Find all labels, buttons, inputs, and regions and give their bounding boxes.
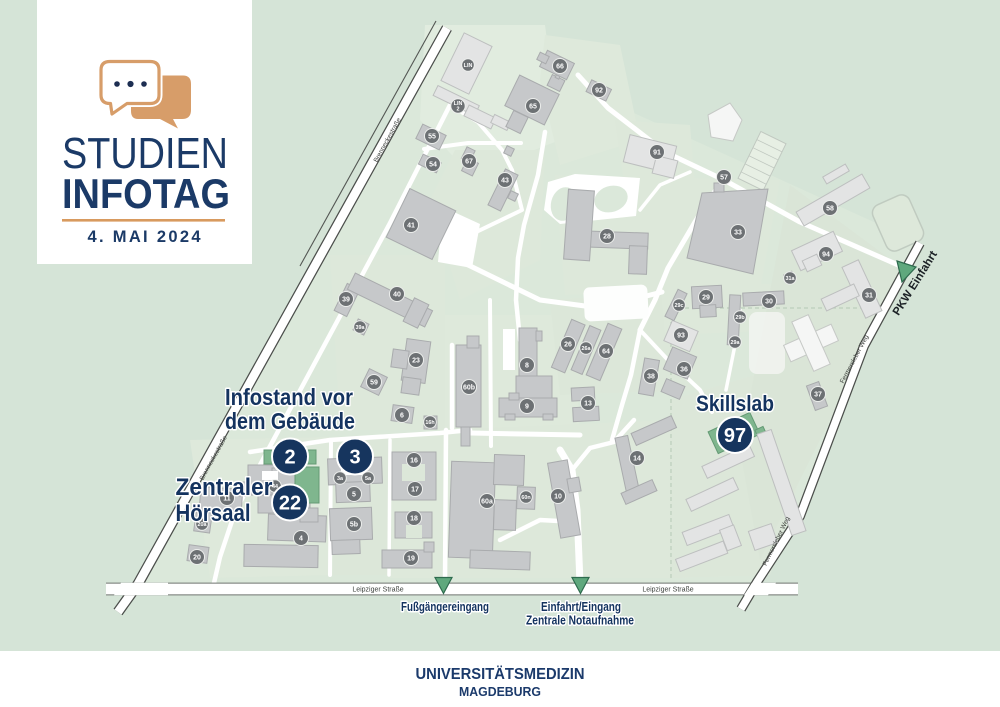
svg-text:43: 43 (501, 178, 509, 185)
svg-text:Skillslab: Skillslab (696, 391, 774, 416)
svg-text:60a: 60a (481, 499, 493, 506)
svg-text:22: 22 (279, 493, 301, 515)
svg-text:92: 92 (595, 88, 603, 95)
svg-text:10: 10 (554, 494, 562, 501)
svg-text:30: 30 (765, 299, 773, 306)
svg-text:60n: 60n (521, 495, 530, 501)
svg-text:40: 40 (393, 292, 401, 299)
svg-text:36: 36 (680, 367, 688, 374)
svg-text:Leipziger Straße: Leipziger Straße (642, 587, 693, 594)
svg-text:18: 18 (410, 516, 418, 523)
svg-text:67: 67 (465, 159, 473, 166)
svg-text:39a: 39a (356, 325, 366, 331)
svg-text:INFOTAG: INFOTAG (62, 170, 230, 217)
svg-text:94: 94 (822, 252, 830, 259)
svg-text:6: 6 (400, 413, 404, 420)
svg-text:37: 37 (814, 392, 822, 399)
svg-text:38: 38 (647, 374, 655, 381)
svg-text:2: 2 (457, 107, 460, 113)
svg-text:4: 4 (299, 536, 303, 543)
svg-text:41: 41 (407, 223, 415, 230)
svg-text:93: 93 (677, 333, 685, 340)
svg-text:LIN: LIN (464, 63, 473, 69)
svg-text:16h: 16h (425, 420, 434, 426)
svg-text:Fußgängereingang: Fußgängereingang (401, 600, 489, 614)
svg-text:54: 54 (429, 162, 437, 169)
svg-text:5b: 5b (350, 522, 358, 529)
svg-text:60b: 60b (463, 385, 475, 392)
svg-text:17: 17 (411, 487, 419, 494)
svg-text:31a: 31a (786, 276, 796, 282)
svg-text:97: 97 (724, 425, 746, 447)
svg-text:64: 64 (602, 349, 610, 356)
svg-text:Hörsaal: Hörsaal (176, 500, 251, 527)
svg-text:Zentraler: Zentraler (176, 474, 273, 501)
svg-text:29a: 29a (731, 340, 741, 346)
svg-text:Leipziger Straße: Leipziger Straße (352, 587, 403, 594)
svg-text:MAGDEBURG: MAGDEBURG (459, 684, 541, 699)
svg-text:29c: 29c (675, 303, 684, 309)
svg-text:3: 3 (349, 447, 360, 469)
svg-text:28: 28 (603, 234, 611, 241)
svg-text:91: 91 (653, 150, 661, 157)
svg-text:55: 55 (428, 134, 436, 141)
svg-text:dem Gebäude: dem Gebäude (225, 408, 355, 434)
svg-text:31: 31 (865, 293, 873, 300)
svg-text:59: 59 (370, 380, 378, 387)
svg-text:33: 33 (734, 230, 742, 237)
svg-text:65: 65 (529, 104, 537, 111)
svg-text:Einfahrt/Eingang: Einfahrt/Eingang (541, 600, 621, 614)
svg-text:Infostand vor: Infostand vor (225, 384, 353, 410)
svg-text:2: 2 (284, 447, 295, 469)
svg-text:Zentrale Notaufnahme: Zentrale Notaufnahme (526, 614, 634, 628)
svg-text:29: 29 (702, 295, 710, 302)
svg-text:13: 13 (584, 401, 592, 408)
svg-text:20: 20 (193, 555, 201, 562)
svg-text:16: 16 (410, 458, 418, 465)
svg-text:8: 8 (525, 363, 529, 370)
svg-text:58: 58 (826, 206, 834, 213)
svg-text:39: 39 (342, 297, 350, 304)
svg-text:5a: 5a (365, 476, 372, 482)
svg-text:66: 66 (556, 64, 564, 71)
svg-text:26: 26 (564, 342, 572, 349)
svg-text:14: 14 (633, 456, 641, 463)
svg-text:9: 9 (525, 404, 529, 411)
svg-text:29b: 29b (735, 315, 745, 321)
svg-text:57: 57 (720, 175, 728, 182)
svg-text:23: 23 (412, 358, 420, 365)
svg-text:19: 19 (407, 556, 415, 563)
svg-text:26a: 26a (582, 346, 592, 352)
svg-text:3a: 3a (337, 476, 344, 482)
svg-text:UNIVERSITÄTSMEDIZIN: UNIVERSITÄTSMEDIZIN (416, 666, 585, 683)
svg-text:5: 5 (352, 492, 356, 499)
